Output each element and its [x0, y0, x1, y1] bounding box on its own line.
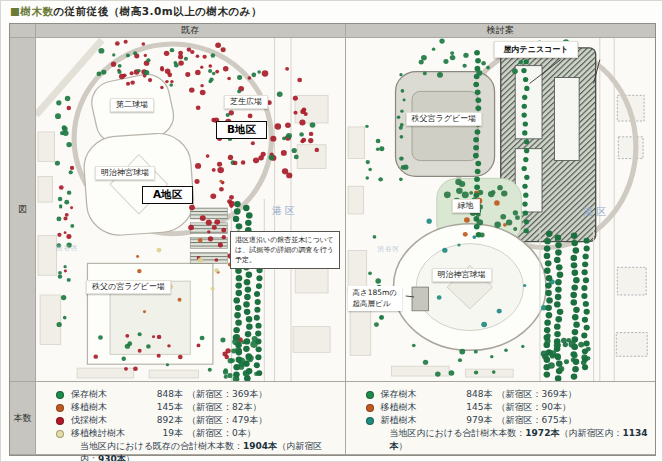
label-rugby-stadium-existing: 秩父の宮ラグビー場: [86, 280, 171, 294]
column-header-proposal: 検討案: [346, 24, 656, 38]
label-green-space: 緑地: [452, 199, 480, 213]
transplanted-tree-dot: [366, 404, 374, 412]
legend-item-label: 新植樹木: [381, 414, 453, 427]
label-shibuya-ward-proposal: 渋谷区: [378, 245, 401, 254]
row-label-map: 図: [10, 38, 36, 382]
label-rugby-stadium-proposal: 秩父宮ラグビー場: [406, 112, 483, 126]
new-tree-dot: [366, 417, 374, 425]
total-count: 1904本: [243, 441, 277, 451]
label-highrise-tower: 高さ185mの 超高層ビル: [348, 286, 402, 311]
label-second-stadium: 第二球場: [110, 98, 154, 112]
total-prefix: 当地区内における既存の合計樹木本数：: [80, 441, 243, 451]
legend-item-count: 145本: [143, 401, 183, 414]
legend-item-label: 移植検討樹木: [71, 427, 143, 440]
column-header-existing: 既存: [36, 24, 346, 38]
legend-item-preserved: 保存樹木 848本 （新宿区：369本）: [56, 388, 339, 401]
total-count: 1972本: [525, 428, 559, 438]
label-shibuya-ward-existing: 渋谷区: [56, 244, 79, 253]
legend-item-felled: 伐採樹木 892本 （新宿区：479本）: [56, 414, 339, 427]
document-page: ■樹木数の従前従後（樹高3.0m以上の樹木のみ） 既存 検討案 図: [0, 0, 663, 462]
proposal-legend: 保存樹木 848本 （新宿区：369本） 移植樹木 145本 （新宿区：90本）…: [346, 382, 656, 455]
legend-item-ward-count: （新宿区：479本）: [187, 414, 267, 427]
label-jingu-stadium-existing: 明治神宮球場: [95, 166, 155, 180]
tower-label-line1: 高さ185mの: [353, 288, 397, 299]
legend-item-transplanted: 移植樹木 145本 （新宿区：82本）: [56, 401, 339, 414]
header-corner-cell: [10, 24, 36, 38]
label-district-b: B地区: [216, 121, 267, 139]
legend-item-count: 892本: [143, 414, 183, 427]
legend-item-label: 伐採樹木: [71, 414, 143, 427]
label-lawn-plaza: 芝生広場: [224, 95, 268, 109]
label-minato-ward-proposal: 港区: [584, 205, 610, 219]
total-suffix: ）: [399, 441, 408, 451]
legend-item-count: 145本: [453, 401, 493, 414]
legend-item-count: 979本: [453, 414, 493, 427]
title-text: の従前従後（樹高3.0m以上の樹木のみ）: [53, 5, 262, 17]
legend-item-label: 保存樹木: [381, 388, 453, 401]
proposal-map-panel: 屋内テニスコート 秩父宮ラグビー場 緑地 明治神宮球場 高さ185mの 超高層ビ…: [346, 38, 656, 382]
legend-item-count: 19本: [143, 427, 183, 440]
legend-item-ward-count: （新宿区：369本）: [497, 388, 577, 401]
existing-map: [36, 38, 345, 381]
total-ward-count: 930本: [98, 454, 126, 462]
comparison-table: 既存 検討案 図: [9, 23, 656, 456]
legend-item-transplant-considered: 移植検討樹木 19本 （新宿区：0本）: [56, 427, 339, 440]
label-minato-ward-existing: 港区: [272, 204, 298, 218]
legend-item-label: 移植樹木: [71, 401, 143, 414]
label-district-a: A地区: [142, 186, 193, 204]
legend-item-ward-count: （新宿区：369本）: [187, 388, 267, 401]
existing-legend: 保存樹木 848本 （新宿区：369本） 移植樹木 145本 （新宿区：82本）…: [36, 382, 346, 455]
legend-item-label: 保存樹木: [71, 388, 143, 401]
page-title: ■樹木数の従前従後（樹高3.0m以上の樹木のみ）: [10, 5, 262, 19]
legend-item-ward-count: （新宿区：0本）: [187, 427, 256, 440]
total-prefix: 当地区内における合計樹木本数：: [390, 428, 526, 438]
legend-item-preserved: 保存樹木 848本 （新宿区：369本）: [366, 388, 650, 401]
transplant-considered-tree-dot: [56, 430, 64, 438]
row-label-count: 本数: [10, 382, 36, 455]
legend-item-count: 848本: [453, 388, 493, 401]
preserved-tree-dot: [366, 391, 374, 399]
transplanted-tree-dot: [56, 404, 64, 412]
total-mid: （内新宿区内：: [559, 428, 622, 438]
title-marker: ■樹木数: [10, 5, 53, 17]
total-suffix: ）: [126, 454, 135, 462]
label-jingu-stadium-proposal: 明治神宮球場: [432, 268, 492, 282]
existing-total-line: 当地区内における既存の合計樹木本数：1904本（内新宿区内：930本）: [56, 440, 339, 462]
legend-item-transplanted: 移植樹木 145本 （新宿区：90本）: [366, 401, 650, 414]
legend-item-newly-planted: 新植樹木 979本 （新宿区：675本）: [366, 414, 650, 427]
preserved-tree-dot: [56, 391, 64, 399]
legend-item-count: 848本: [143, 388, 183, 401]
existing-map-panel: 第二球場 芝生広場 B地区 明治神宮球場 A地区 秩父の宮ラグビー場 港区 渋谷…: [36, 38, 346, 382]
tower-label-line2: 超高層ビル: [353, 299, 397, 310]
legend-item-label: 移植樹木: [381, 401, 453, 414]
legend-item-ward-count: （新宿区：90本）: [497, 401, 571, 414]
felled-tree-dot: [56, 417, 64, 425]
legend-item-ward-count: （新宿区：82本）: [187, 401, 261, 414]
proposal-total-line: 当地区内における合計樹木本数：1972本（内新宿区内：1134本）: [366, 427, 650, 453]
label-indoor-tennis-court: 屋内テニスコート: [494, 41, 579, 58]
ginkgo-survey-note: 港区道沿いの銀杏並木については、試掘等の詳細の調査を行う予定。: [230, 231, 340, 269]
legend-item-ward-count: （新宿区：675本）: [497, 414, 577, 427]
